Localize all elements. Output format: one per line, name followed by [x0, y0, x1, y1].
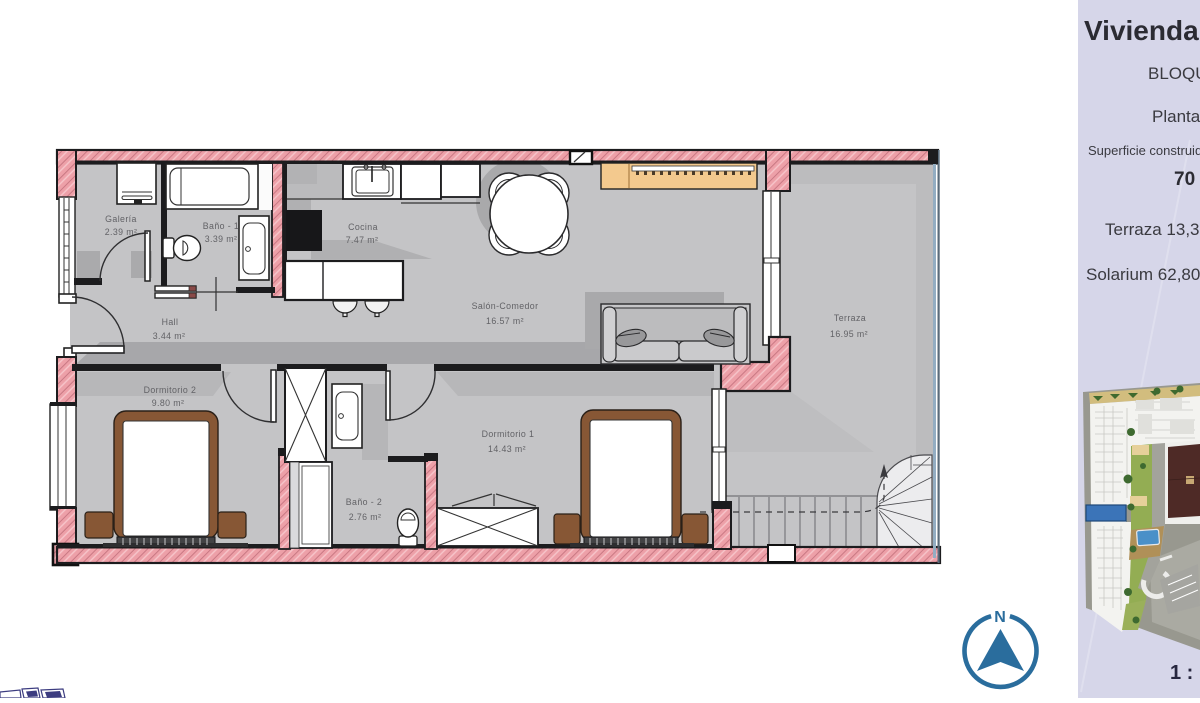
- svg-text:Galería: Galería: [105, 214, 137, 224]
- svg-text:BLOQUE 2: BLOQUE 2: [1148, 64, 1200, 83]
- svg-text:14.43 m²: 14.43 m²: [488, 444, 526, 454]
- svg-text:Salón-Comedor: Salón-Comedor: [472, 301, 539, 311]
- svg-text:16.95 m²: 16.95 m²: [830, 329, 868, 339]
- svg-text:2.76 m²: 2.76 m²: [349, 512, 382, 522]
- svg-text:N: N: [994, 609, 1006, 626]
- svg-text:Dormitorio 1: Dormitorio 1: [482, 429, 535, 439]
- svg-text:Dormitorio 2: Dormitorio 2: [144, 385, 197, 395]
- svg-text:Solarium 62,80: Solarium 62,80: [1086, 265, 1200, 284]
- svg-text:Baño - 1: Baño - 1: [203, 221, 239, 231]
- svg-text:Cocina: Cocina: [348, 222, 378, 232]
- svg-text:2.39 m²: 2.39 m²: [105, 227, 138, 237]
- svg-text:70 m: 70 m: [1174, 169, 1200, 190]
- svg-text:Hall: Hall: [162, 317, 179, 327]
- svg-text:Terraza: Terraza: [834, 313, 866, 323]
- svg-text:9.80 m²: 9.80 m²: [152, 398, 185, 408]
- svg-text:16.57 m²: 16.57 m²: [486, 316, 524, 326]
- svg-text:Baño - 2: Baño - 2: [346, 497, 382, 507]
- svg-text:Superficie construida: Superficie construida: [1088, 143, 1200, 158]
- svg-text:7.47 m²: 7.47 m²: [346, 235, 379, 245]
- svg-text:Planta 2: Planta 2: [1152, 107, 1200, 126]
- svg-text:3.39 m²: 3.39 m²: [205, 234, 238, 244]
- svg-text:3.44 m²: 3.44 m²: [153, 331, 186, 341]
- svg-text:Vivienda B: Vivienda B: [1084, 15, 1200, 46]
- svg-text:1 : 10: 1 : 10: [1170, 662, 1200, 684]
- svg-text:Terraza 13,35: Terraza 13,35: [1105, 220, 1200, 239]
